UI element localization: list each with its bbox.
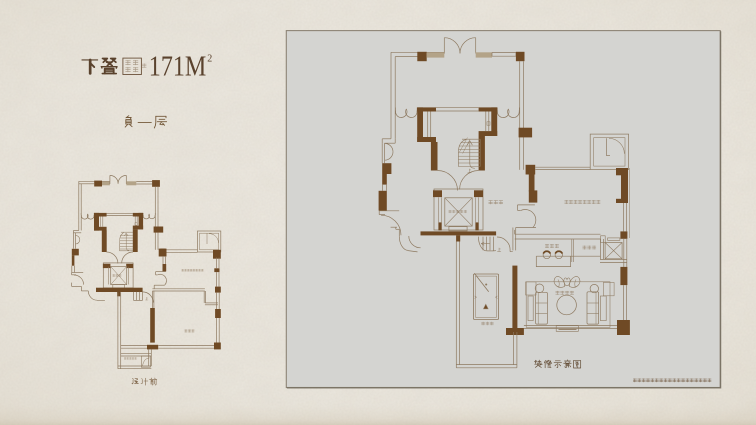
- svg-text:2: 2: [207, 54, 212, 65]
- svg-text:171M: 171M: [149, 51, 207, 83]
